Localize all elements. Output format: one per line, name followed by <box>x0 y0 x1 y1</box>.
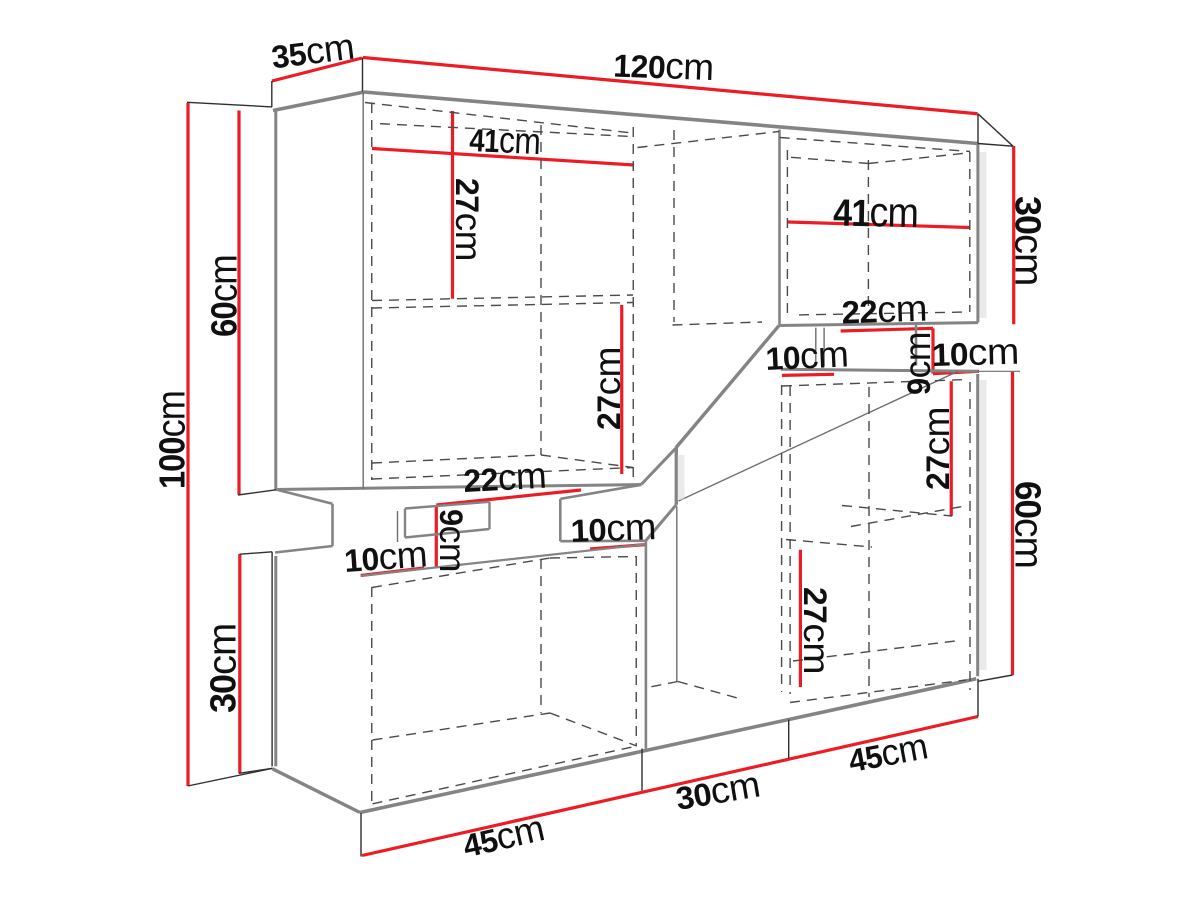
svg-text:41cm: 41cm <box>469 119 542 163</box>
svg-text:22cm: 22cm <box>841 287 928 331</box>
svg-text:10cm: 10cm <box>931 332 1019 375</box>
svg-text:30cm: 30cm <box>1007 196 1051 285</box>
svg-text:9cm: 9cm <box>896 332 938 395</box>
svg-text:60cm: 60cm <box>1006 481 1051 568</box>
svg-text:27cm: 27cm <box>795 587 836 674</box>
svg-text:27cm: 27cm <box>587 347 628 430</box>
svg-text:10cm: 10cm <box>765 333 850 378</box>
svg-text:30cm: 30cm <box>201 624 245 713</box>
svg-text:27cm: 27cm <box>916 407 957 490</box>
svg-text:41cm: 41cm <box>833 189 919 237</box>
svg-text:10cm: 10cm <box>570 506 657 550</box>
svg-text:100cm: 100cm <box>149 391 194 489</box>
svg-text:60cm: 60cm <box>201 255 246 337</box>
svg-text:27cm: 27cm <box>448 178 489 261</box>
svg-text:9cm: 9cm <box>432 509 474 572</box>
svg-text:22cm: 22cm <box>462 455 547 500</box>
svg-text:120cm: 120cm <box>613 44 715 88</box>
